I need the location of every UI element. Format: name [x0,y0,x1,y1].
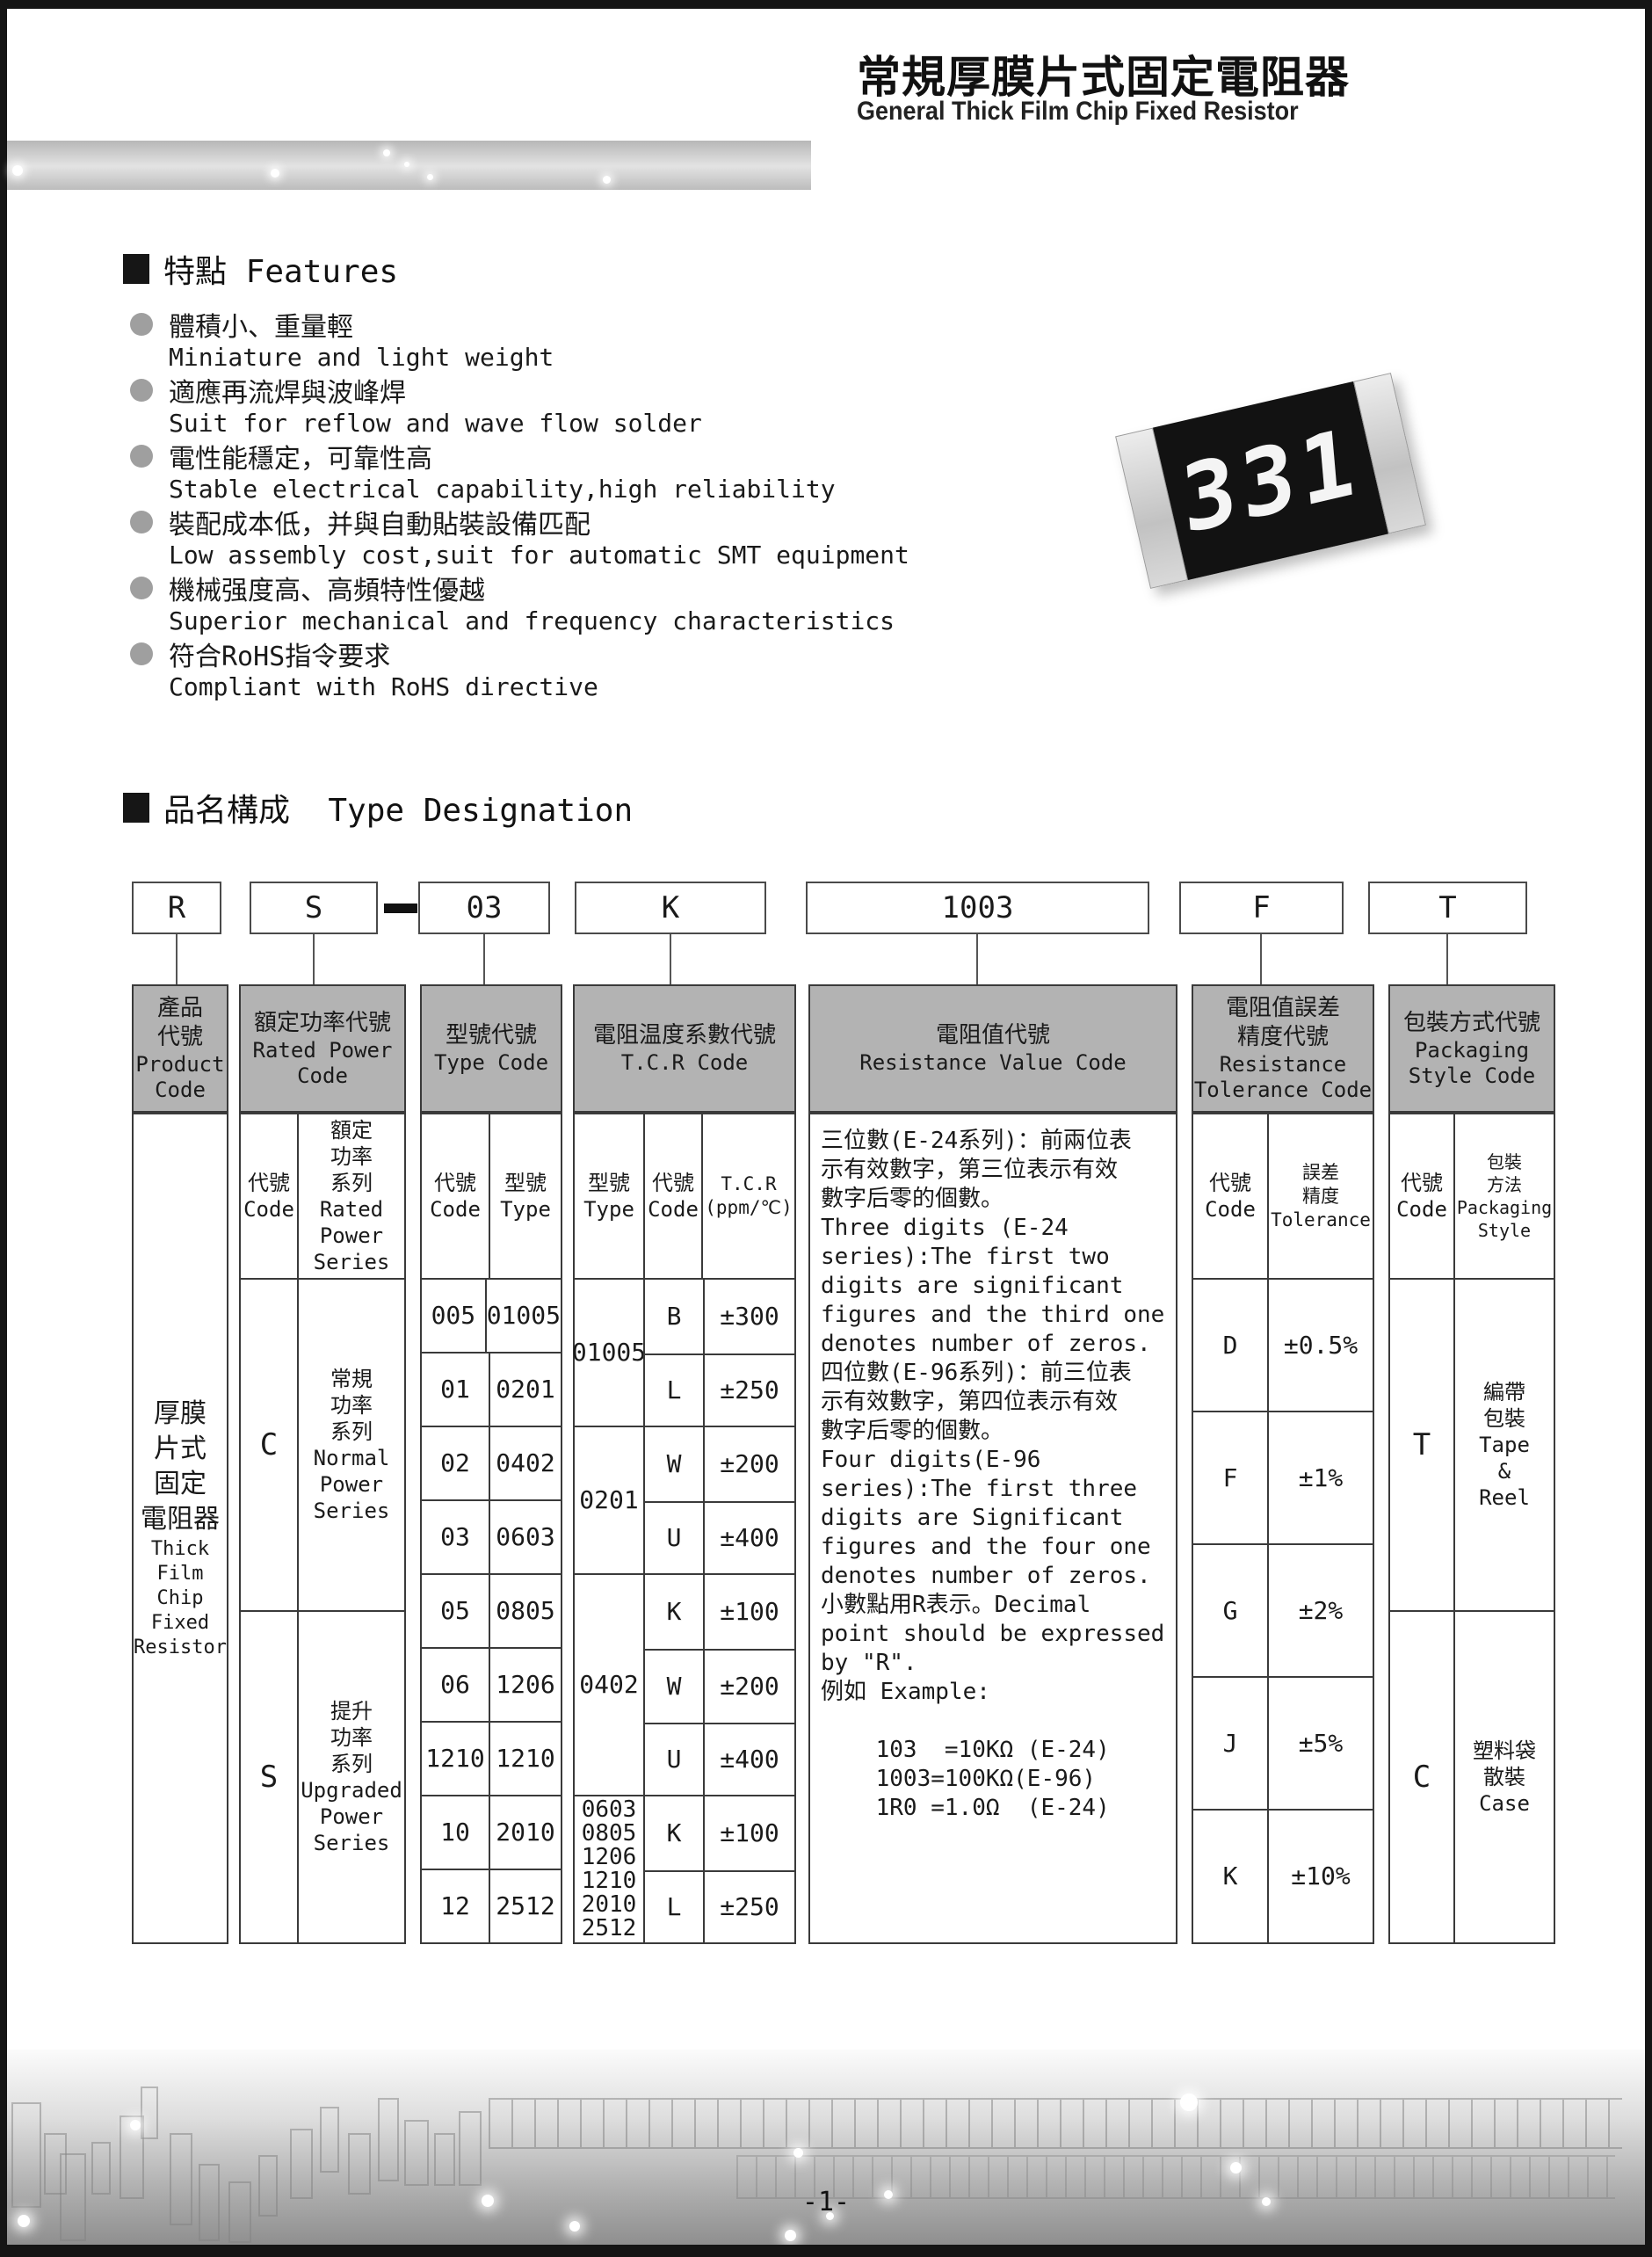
tcr-value-cell: ±100 [703,1575,794,1649]
bullet-icon [130,379,153,402]
glow-dot [1230,2162,1242,2174]
bullet-icon [130,511,153,533]
tcr-code-cell: K [645,1575,703,1649]
header-zh: 額定功率代號 [254,1009,391,1038]
header-product-code: 產品 代號 Product Code [132,984,228,1113]
header-gradient-band [7,141,811,190]
type-code-cell: 02 [422,1427,489,1499]
type-code-cell: 12 [422,1870,489,1942]
packaging-style-cell: 編帶 包裝 Tape & Reel [1453,1280,1554,1610]
subheader-type: 型號 Type [575,1114,643,1278]
tcr-code-cell: L [645,1355,703,1426]
footer-decoration: -1- [7,2050,1645,2245]
feature-zh: 適應再流焊與波峰焊 [169,371,406,410]
code-box-type: 03 [418,882,550,934]
footer-rect [434,2133,455,2186]
footer-rect [11,2102,41,2208]
sparkle-icon [383,149,390,156]
glow-dot [482,2195,494,2207]
tcr-value-cell: ±400 [703,1724,794,1795]
connector-line [483,934,485,984]
packaging-column: 代號 Code 包裝 方法 Packaging Style T 編帶 包裝 Ta… [1388,1113,1555,1944]
header-packaging-style-code: 包裝方式代號 Packaging Style Code [1388,984,1555,1113]
tolerance-code-cell: D [1193,1280,1267,1411]
tcr-code-cell: W [645,1427,703,1501]
feature-zh: 裝配成本低，并與自動貼裝設備匹配 [169,503,591,541]
tcr-code-cell: L [645,1872,703,1942]
frame-bottom [0,2245,1652,2257]
feature-zh: 電性能穩定，可靠性高 [169,437,432,475]
header-resistance-value-code: 電阻值代號 Resistance Value Code [808,984,1177,1113]
feature-item: 裝配成本低，并與自動貼裝設備匹配 Low assembly cost,suit … [130,505,909,571]
section-square-icon [123,793,149,823]
type-code-cell: 05 [422,1575,489,1647]
sparkle-icon [427,174,433,180]
resistor-body: 331 [1153,381,1388,580]
tolerance-value-cell: ±0.5% [1267,1280,1373,1411]
features-heading: 特點 Features [123,246,398,292]
type-code-cell: 06 [422,1649,489,1721]
header-en: Packaging Style Code [1409,1038,1536,1089]
type-code-cell: 10 [422,1796,489,1869]
footer-rect [228,2181,251,2243]
type-size-cell: 1206 [489,1649,561,1721]
glow-dot [569,2221,580,2232]
frame-top [0,0,1652,9]
bullet-icon [130,445,153,468]
tcr-type-group: 0402 [575,1575,643,1795]
subheader-style: 包裝 方法 Packaging Style [1453,1114,1554,1278]
feature-en: Low assembly cost,suit for automatic SMT… [130,539,909,571]
glow-dot [1262,2197,1271,2206]
feature-item: 適應再流焊與波峰焊 Suit for reflow and wave flow … [130,374,909,439]
header-tcr-code: 電阻温度系數代號 T.C.R Code [573,984,796,1113]
tolerance-value-cell: ±5% [1267,1678,1373,1809]
resistance-value-column: 三位數(E-24系列)：前兩位表 示有效數字，第三位表示有效 數字后零的個數。 … [808,1113,1177,1944]
datasheet-page: 常規厚膜片式固定電阻器 General Thick Film Chip Fixe… [0,0,1652,2257]
product-en: Thick Film Chip Fixed Resistor [134,1537,227,1660]
tcr-column: 型號 Type 代號 Code T.C.R (ppm/℃) 01005 B±30… [573,1113,796,1944]
feature-en: Stable electrical capability,high reliab… [130,473,909,505]
header-en: Product Code [135,1052,224,1103]
sparkle-icon [12,165,23,176]
tcr-value-cell: ±400 [703,1503,794,1573]
tolerance-code-cell: J [1193,1678,1267,1809]
header-zh: 電阻温度系數代號 [593,1021,776,1050]
tolerance-value-cell: ±2% [1267,1545,1373,1676]
tcr-code-cell: U [645,1503,703,1573]
glow-dot [1180,2094,1198,2111]
packaging-code-cell: T [1390,1280,1453,1610]
power-series-cell: 提升 功率 系列 Upgraded Power Series [297,1612,404,1942]
feature-zh: 體積小、重量輕 [169,305,353,344]
feature-item: 機械强度高、高頻特性優越 Superior mechanical and fre… [130,571,909,637]
tcr-code-cell: W [645,1651,703,1723]
rated-power-column: 代號 Code 額定 功率 系列 Rated Power Series C 常規… [239,1113,406,1944]
header-zh: 產品 代號 [157,994,203,1052]
glow-dot [785,2230,796,2241]
tolerance-code-cell: F [1193,1412,1267,1543]
header-en: Rated Power Code [253,1038,393,1089]
feature-item: 電性能穩定，可靠性高 Stable electrical capability,… [130,439,909,505]
product-zh: 厚膜 片式 固定 電阻器 [141,1397,220,1537]
tcr-value-cell: ±250 [703,1355,794,1426]
subheader-code: 代號 Code [1390,1114,1453,1278]
power-code-cell: S [241,1612,297,1942]
feature-item: 體積小、重量輕 Miniature and light weight [130,308,909,374]
type-size-cell: 0603 [489,1501,561,1573]
type-size-cell: 0805 [489,1575,561,1647]
tcr-type-group: 0603 0805 1206 1210 2010 2512 [575,1796,643,1942]
tcr-type-group: 01005 [575,1280,643,1426]
tcr-type-group: 0201 [575,1427,643,1573]
tolerance-code-cell: K [1193,1811,1267,1942]
type-code-cell: 01 [422,1353,489,1426]
product-cell: 厚膜 片式 固定 電阻器 Thick Film Chip Fixed Resis… [134,1114,227,1942]
section-square-icon [123,254,149,284]
footer-rect [141,2086,158,2139]
tolerance-value-cell: ±1% [1267,1412,1373,1543]
type-designation-heading-label: 品名構成 Type Designation [163,785,633,831]
subheader-code: 代號 Code [1193,1114,1267,1278]
tcr-code-cell: K [645,1796,703,1870]
code-box-power: S [250,882,378,934]
type-size-cell: 0201 [489,1353,561,1426]
footer-rect [199,2164,220,2241]
glow-dot [884,2190,893,2199]
resistor-marking: 331 [1177,406,1363,555]
type-code-column: 代號 Code 型號 Type 00501005 010201 020402 0… [420,1113,562,1944]
tolerance-column: 代號 Code 誤差 精度 Tolerance D±0.5% F±1% G±2%… [1192,1113,1374,1944]
packaging-code-cell: C [1390,1612,1453,1942]
header-zh: 電阻值代號 [936,1021,1050,1050]
type-code-cell: 1210 [422,1723,489,1795]
footer-rect [404,2120,429,2186]
features-list: 體積小、重量輕 Miniature and light weight 適應再流焊… [130,308,909,703]
resistance-value-text: 三位數(E-24系列)：前兩位表 示有效數字，第三位表示有效 數字后零的個數。 … [810,1114,1176,1835]
tolerance-value-cell: ±10% [1267,1811,1373,1942]
tcr-value-cell: ±200 [703,1427,794,1501]
subheader-tolerance: 誤差 精度 Tolerance [1267,1114,1373,1278]
tcr-value-cell: ±300 [703,1280,794,1353]
connector-line [976,934,978,984]
feature-zh: 機械强度高、高頻特性優越 [169,569,485,607]
subheader-type: 型號 Type [489,1114,561,1278]
code-box-value: 1003 [806,882,1149,934]
header-en: T.C.R Code [621,1050,749,1076]
feature-en: Suit for reflow and wave flow solder [130,407,909,439]
footer-rect [170,2133,192,2225]
footer-rect [290,2129,313,2199]
type-size-cell: 2010 [489,1796,561,1869]
type-size-cell: 2512 [489,1870,561,1942]
power-code-cell: C [241,1280,297,1610]
header-rated-power-code: 額定功率代號 Rated Power Code [239,984,406,1113]
bullet-icon [130,313,153,336]
footer-rect [459,2111,482,2186]
feature-item: 符合RoHS指令要求 Compliant with RoHS directive [130,637,909,703]
type-code-cell: 005 [422,1280,485,1352]
code-box-product: R [132,882,221,934]
sparkle-icon [404,162,409,167]
footer-rect [60,2153,86,2241]
bullet-icon [130,642,153,665]
tcr-value-cell: ±100 [703,1796,794,1870]
header-zh: 包裝方式代號 [1403,1009,1540,1038]
code-box-tolerance: F [1179,882,1344,934]
type-code-cell: 03 [422,1501,489,1573]
glow-dot [130,2120,141,2130]
footer-rect [258,2155,278,2217]
connector-line [1446,934,1448,984]
chip-resistor-photo: 331 [1115,373,1426,589]
feature-zh: 符合RoHS指令要求 [169,635,390,673]
connector-line [1260,934,1262,984]
header-resistance-tolerance-code: 電阻值誤差 精度代號 Resistance Tolerance Code [1192,984,1374,1113]
product-code-column: 厚膜 片式 固定 電阻器 Thick Film Chip Fixed Resis… [132,1113,228,1944]
type-size-cell: 01005 [485,1280,561,1352]
code-dash: - [384,904,417,913]
type-size-cell: 1210 [489,1723,561,1795]
footer-rect-row [736,2155,1615,2199]
footer-rect [91,2142,111,2195]
code-box-packaging: T [1368,882,1527,934]
header-type-code: 型號代號 Type Code [420,984,562,1113]
page-subtitle: General Thick Film Chip Fixed Resistor [857,97,1299,127]
subheader-code: 代號 Code [643,1114,701,1278]
footer-rect [378,2098,399,2181]
connector-line [176,934,178,984]
feature-en: Miniature and light weight [130,341,909,374]
frame-left [0,0,7,2257]
subheader-series: 額定 功率 系列 Rated Power Series [297,1114,404,1278]
code-box-tcr: K [575,882,766,934]
type-size-cell: 0402 [489,1427,561,1499]
sparkle-icon [271,169,279,178]
header-zh: 型號代號 [446,1021,537,1050]
tcr-value-cell: ±250 [703,1872,794,1942]
feature-en: Compliant with RoHS directive [130,671,909,703]
feature-en: Superior mechanical and frequency charac… [130,605,909,637]
header-en: Resistance Value Code [859,1050,1126,1076]
connector-line [313,934,315,984]
bullet-icon [130,577,153,599]
header-en: Type Code [434,1050,548,1076]
footer-rect [320,2107,339,2173]
header-en: Resistance Tolerance Code [1194,1052,1372,1103]
page-number: -1- [802,2187,850,2217]
tcr-code-cell: U [645,1724,703,1795]
glow-dot [18,2215,30,2227]
tcr-code-cell: B [645,1280,703,1353]
type-designation-heading: 品名構成 Type Designation [123,785,633,831]
frame-right [1645,0,1652,2257]
subheader-code: 代號 Code [241,1114,297,1278]
features-heading-label: 特點 Features [163,246,398,292]
power-series-cell: 常規 功率 系列 Normal Power Series [297,1280,404,1610]
connector-line [670,934,671,984]
packaging-style-cell: 塑料袋 散裝 Case [1453,1612,1554,1942]
sparkle-icon [603,176,611,184]
tolerance-code-cell: G [1193,1545,1267,1676]
footer-rect-row [489,2098,1622,2149]
subheader-tcr: T.C.R (ppm/℃) [701,1114,794,1278]
footer-rect [348,2133,371,2195]
header-zh: 電阻值誤差 精度代號 [1226,994,1340,1052]
tcr-value-cell: ±200 [703,1651,794,1723]
subheader-code: 代號 Code [422,1114,489,1278]
glow-dot [793,2148,803,2158]
